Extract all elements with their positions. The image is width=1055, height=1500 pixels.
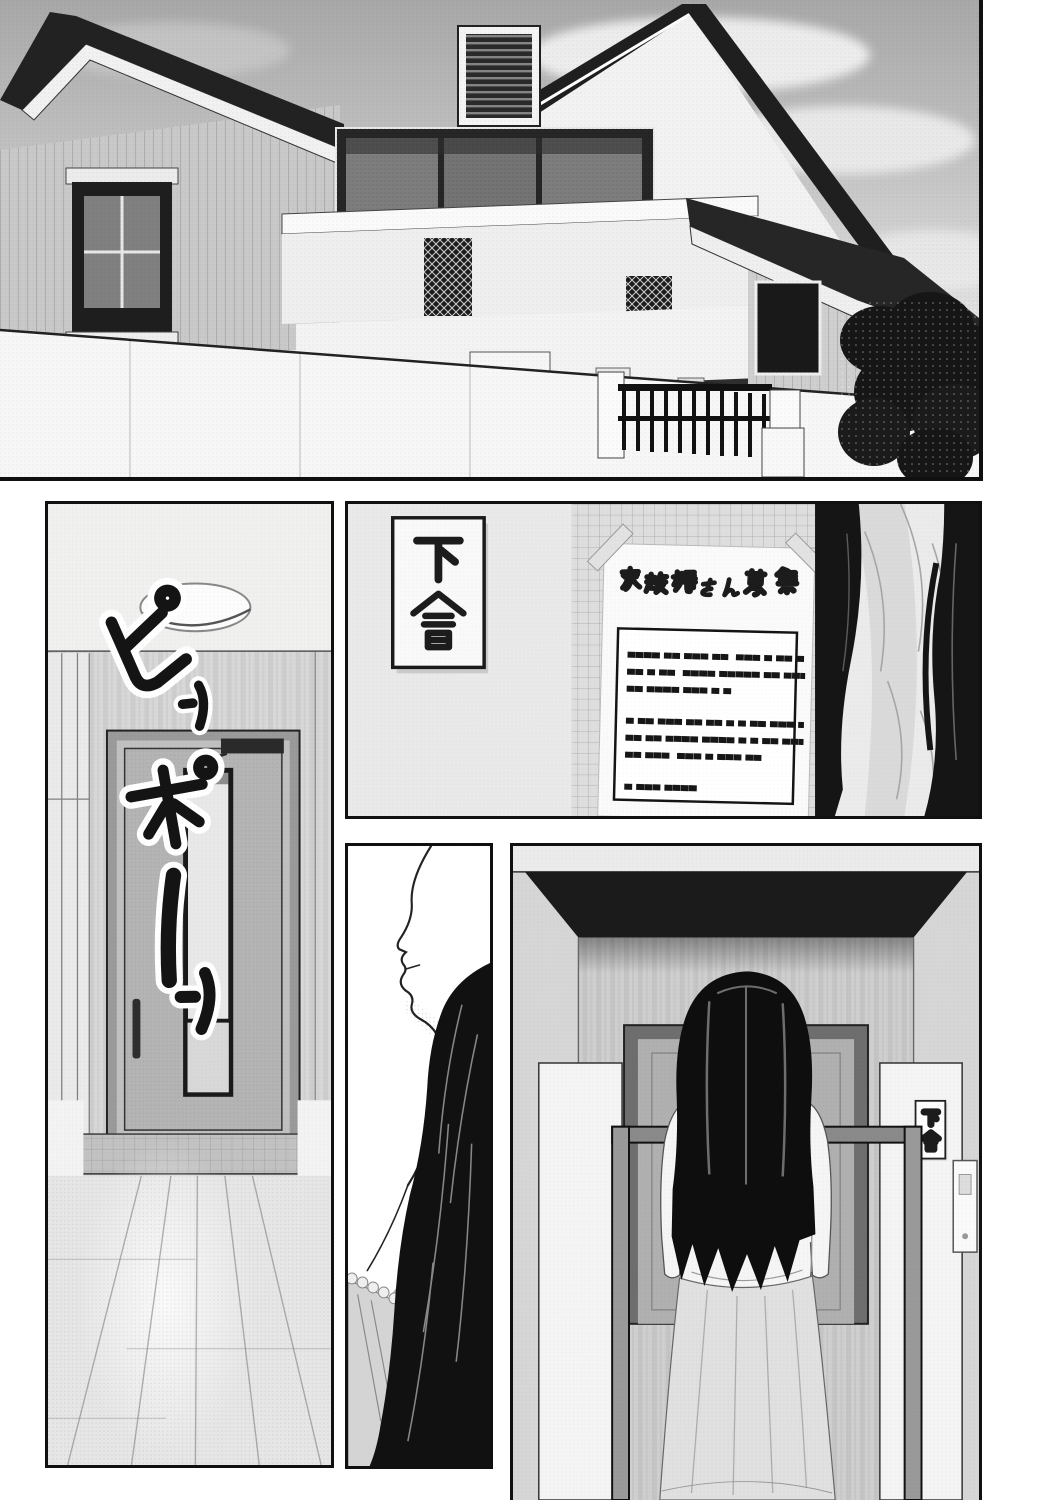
- panel-front-gate: [510, 843, 982, 1500]
- halftone-overlay: [513, 846, 979, 1500]
- halftone-overlay: [48, 504, 331, 1465]
- panel-house-exterior: [0, 0, 983, 481]
- entryway-art: [48, 504, 331, 1465]
- panel-face-closeup: [345, 843, 493, 1469]
- panel-entryway: [45, 501, 334, 1468]
- manga-page: ▄▄▄▄ ▄▄ ▄▄▄ ▄▄ ▄▄▄ ▄ ▄▄ ▄ ▄▄▄ ▄ ▄▄▄ ▄ ▄▄…: [0, 0, 1055, 1500]
- face-closeup-art: [348, 846, 490, 1466]
- halftone-overlay: [348, 846, 490, 1466]
- poster-body-text: ▄▄▄▄ ▄▄ ▄▄▄ ▄▄ ▄▄▄ ▄ ▄▄ ▄ ▄▄▄ ▄ ▄▄▄ ▄ ▄▄…: [618, 638, 806, 810]
- halftone-overlay: [0, 0, 979, 477]
- front-gate-art: [513, 846, 979, 1500]
- house-exterior-art: [0, 0, 979, 477]
- poster-text-line: ▄ ▄▄▄ ▄▄▄▄: [624, 776, 800, 797]
